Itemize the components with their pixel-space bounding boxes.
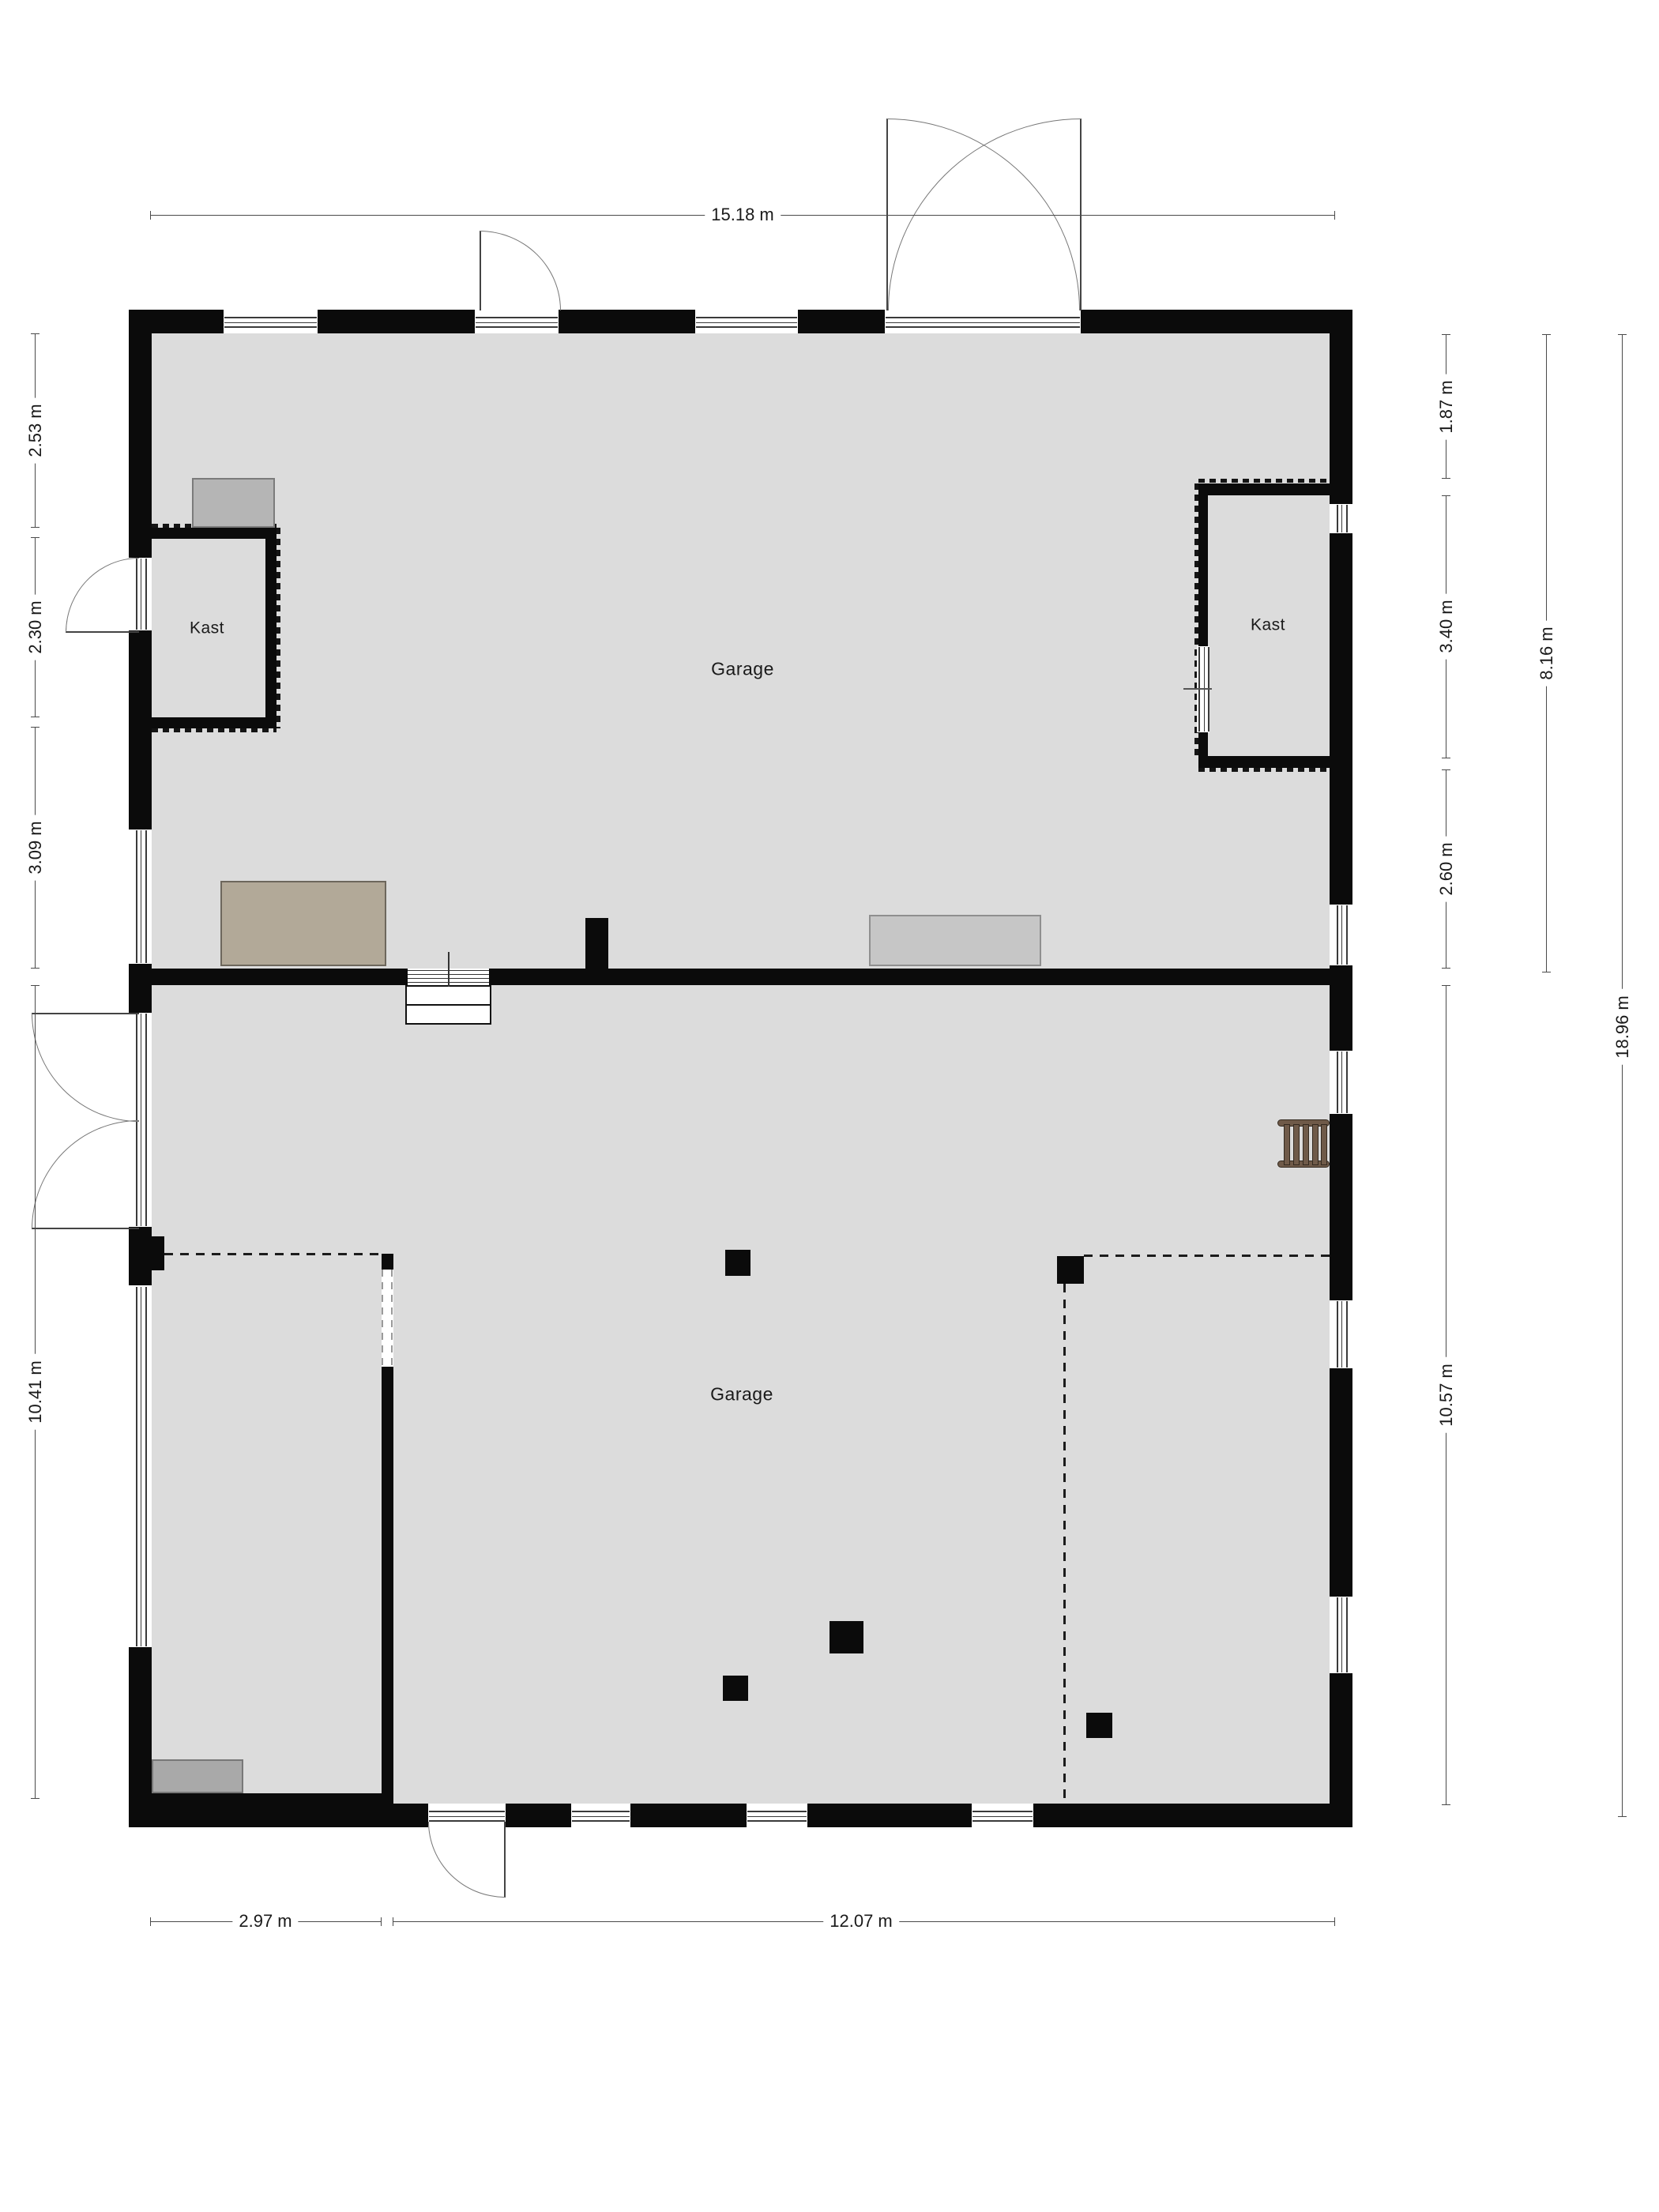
door-arc [32, 1120, 139, 1229]
column [1057, 1256, 1084, 1284]
dimension-label: 8.16 m [1536, 620, 1558, 686]
window [972, 1804, 1033, 1827]
window [224, 310, 318, 333]
stairs-step-divider [405, 1004, 491, 1006]
dimension-label: 10.57 m [1435, 1357, 1458, 1433]
door-arc [32, 1013, 139, 1122]
wall-bottom-1 [393, 1804, 428, 1827]
window [571, 1804, 630, 1827]
cabinet [152, 1759, 243, 1793]
dimension-label: 12.07 m [823, 1910, 899, 1932]
dimension-label: 1.87 m [1435, 374, 1458, 439]
workbench [220, 881, 386, 966]
dimension-label: 2.53 m [24, 397, 47, 463]
kast-right-slider-tick [1183, 688, 1212, 690]
wall-top-3 [559, 310, 695, 333]
dimension-label: 2.30 m [24, 594, 47, 660]
dashed-line [1063, 1284, 1066, 1804]
wall-left-1 [129, 310, 152, 558]
kast-left-wall-bottom [152, 717, 276, 728]
kast-left-zigzag-right [276, 528, 280, 728]
column [723, 1676, 748, 1701]
kast-right-zigzag-top [1198, 479, 1330, 483]
kast-right-wall-top [1198, 483, 1330, 495]
window [129, 829, 152, 964]
wall-top-4 [798, 310, 885, 333]
dim-line-right-outer [1622, 334, 1623, 1817]
ladder-icon [1277, 1119, 1330, 1168]
wall-middle-stub [585, 918, 608, 969]
kast-left-zigzag-bottom [152, 728, 276, 732]
kast-left-wall-right [265, 528, 276, 728]
window [1330, 504, 1352, 533]
wall-left-3 [129, 964, 152, 1013]
dimension-label: 18.96 m [1612, 989, 1634, 1065]
dashed-line [1084, 1255, 1330, 1257]
wall-middle-right [489, 969, 1330, 985]
kast-left-wall-top [152, 528, 276, 539]
kast-right-wall-left-a [1198, 483, 1208, 646]
room-label-kast-right: Kast [1251, 617, 1285, 634]
kast-right-zigzag-bottom [1198, 768, 1330, 772]
window [1330, 1597, 1352, 1673]
door-threshold [475, 310, 559, 333]
dimension-label: 2.97 m [232, 1910, 298, 1932]
room-label-garage-upper: Garage [711, 660, 774, 679]
window [695, 310, 798, 333]
door-arc [428, 1822, 506, 1898]
cabinet [192, 478, 275, 528]
room-label-garage-lower: Garage [710, 1386, 773, 1404]
wall-right-5 [1330, 1368, 1352, 1597]
floorplan-canvas: Garage Garage Kast Kast 15.18 m 2.97 m 1… [0, 0, 1659, 2212]
stairs-direction-line [448, 952, 450, 987]
door-arc [66, 558, 139, 633]
wall-right-1 [1330, 310, 1352, 504]
column [1086, 1713, 1112, 1738]
wall-left-2 [129, 630, 152, 829]
wall-top-2 [318, 310, 475, 333]
dimension-label: 3.40 m [1435, 593, 1458, 659]
dimension-label: 3.09 m [24, 814, 47, 880]
wall-right-4 [1330, 1114, 1352, 1300]
room-label-kast-left: Kast [190, 620, 224, 637]
column [725, 1250, 750, 1276]
window [1330, 1300, 1352, 1368]
door-arc [480, 231, 561, 310]
wall-bottom-4 [807, 1804, 972, 1827]
kast-right-wall-left-b [1198, 732, 1208, 756]
door-threshold [885, 310, 1081, 333]
floor-upper-garage [152, 333, 1330, 969]
wall-bottom-3 [630, 1804, 747, 1827]
column [829, 1621, 863, 1653]
wall-inner-stub [382, 1254, 393, 1270]
wall-bottom-2 [506, 1804, 571, 1827]
wall-bottom-5 [1033, 1804, 1352, 1827]
wall-left-pier-bump [152, 1236, 164, 1270]
kast-right-wall-bottom [1198, 756, 1330, 768]
dimension-label: 2.60 m [1435, 836, 1458, 901]
wall-right-3 [1330, 965, 1352, 1051]
wall-top-5 [1081, 310, 1352, 333]
opening-dash [391, 1270, 393, 1367]
dimension-label: 10.41 m [24, 1354, 47, 1430]
window [1330, 1051, 1352, 1114]
wall-left-pier [129, 1227, 152, 1285]
opening-dash [382, 1270, 383, 1367]
wall-bottom-left-section [129, 1793, 393, 1827]
workbench [869, 915, 1041, 966]
window [1330, 905, 1352, 965]
dashed-line [164, 1253, 382, 1255]
wall-inner-lower [382, 1367, 393, 1804]
window [129, 1286, 152, 1647]
window [747, 1804, 807, 1827]
wall-middle-left [152, 969, 408, 985]
dimension-label: 15.18 m [705, 204, 781, 226]
wall-right-2 [1330, 533, 1352, 905]
